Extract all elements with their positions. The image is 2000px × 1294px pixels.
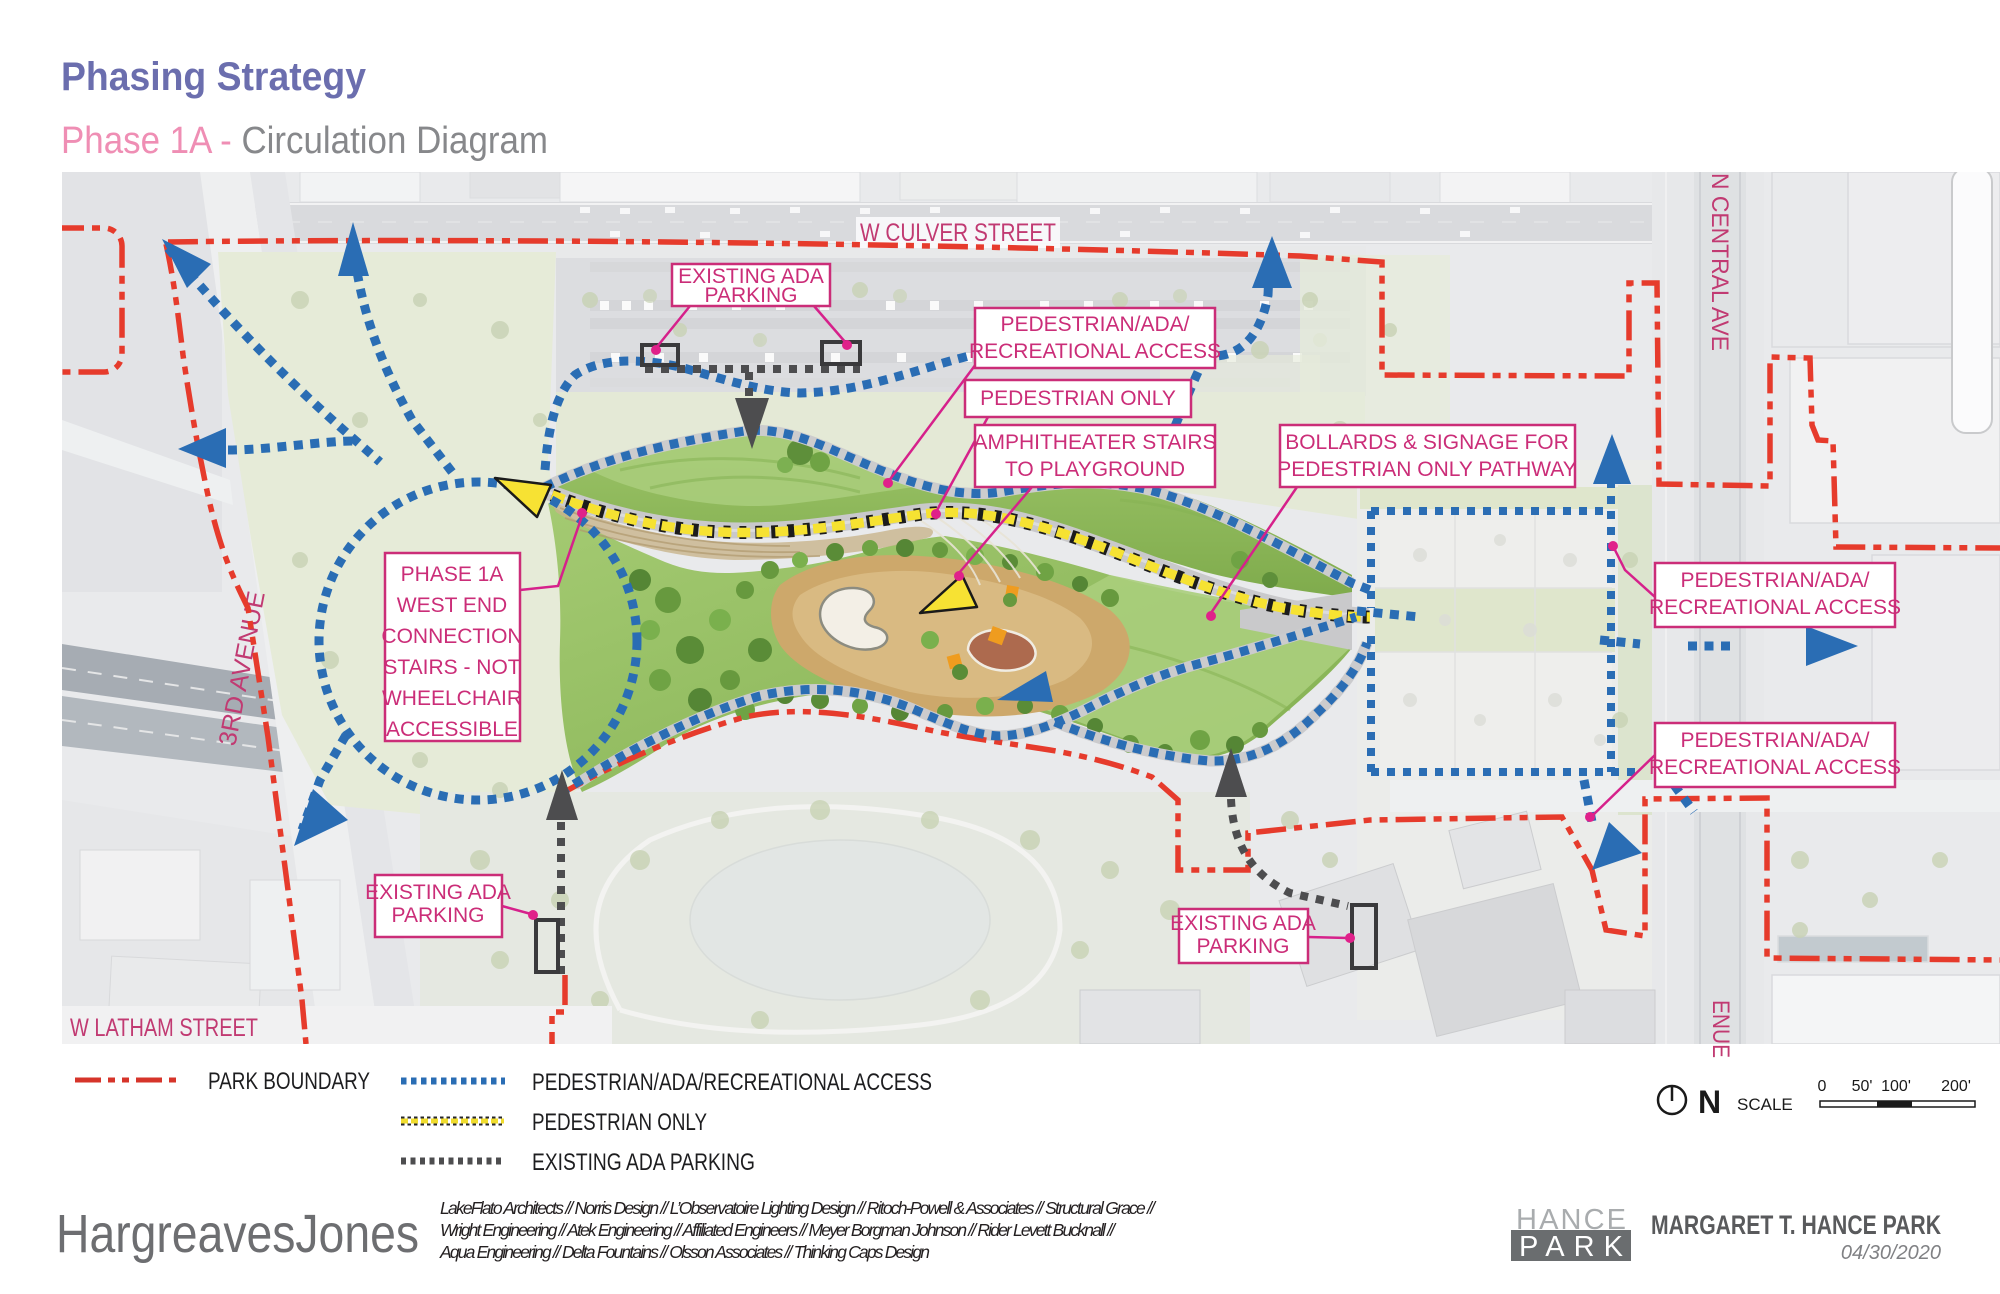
svg-text:PEDESTRIAN ONLY: PEDESTRIAN ONLY: [532, 1109, 707, 1136]
svg-text:PARKING: PARKING: [1197, 935, 1290, 958]
svg-text:EXISTING ADA: EXISTING ADA: [365, 881, 511, 904]
svg-text:0: 0: [1818, 1078, 1827, 1095]
svg-text:EXISTING ADA PARKING: EXISTING ADA PARKING: [532, 1149, 755, 1176]
svg-text:ENUE: ENUE: [1707, 1000, 1734, 1058]
svg-text:WHEELCHAIR: WHEELCHAIR: [382, 687, 522, 710]
svg-text:04/30/2020: 04/30/2020: [1841, 1242, 1941, 1264]
svg-text:PEDESTRIAN/ADA/: PEDESTRIAN/ADA/: [1680, 729, 1869, 752]
svg-text:CONNECTION: CONNECTION: [381, 625, 522, 648]
svg-text:N CENTRAL AVE: N CENTRAL AVE: [1706, 173, 1733, 351]
svg-text:RECREATIONAL ACCESS: RECREATIONAL ACCESS: [969, 340, 1221, 363]
svg-text:PHASE 1A: PHASE 1A: [401, 563, 504, 586]
svg-text:PEDESTRIAN/ADA/: PEDESTRIAN/ADA/: [1000, 313, 1189, 336]
svg-text:RECREATIONAL ACCESS: RECREATIONAL ACCESS: [1649, 756, 1901, 779]
svg-text:WEST END: WEST END: [397, 594, 507, 617]
svg-text:Phase 1A - Circulation Diagram: Phase 1A - Circulation Diagram: [61, 120, 548, 162]
svg-text:AMPHITHEATER STAIRS: AMPHITHEATER STAIRS: [973, 431, 1216, 454]
svg-text:50': 50': [1852, 1078, 1873, 1095]
svg-text:LakeFlato Architects // Norris: LakeFlato Architects // Norris Design //…: [440, 1198, 1157, 1218]
svg-text:Phasing Strategy: Phasing Strategy: [61, 55, 367, 99]
svg-text:TO PLAYGROUND: TO PLAYGROUND: [1005, 458, 1185, 481]
svg-text:Wright Engineering // Atek Eng: Wright Engineering // Atek Engineering /…: [440, 1220, 1117, 1240]
svg-text:PEDESTRIAN/ADA/: PEDESTRIAN/ADA/: [1680, 569, 1869, 592]
svg-text:200': 200': [1941, 1078, 1971, 1095]
svg-text:PEDESTRIAN ONLY PATHWAY: PEDESTRIAN ONLY PATHWAY: [1277, 458, 1577, 481]
svg-text:RECREATIONAL ACCESS: RECREATIONAL ACCESS: [1649, 596, 1901, 619]
svg-text:EXISTING ADA: EXISTING ADA: [1170, 912, 1316, 935]
svg-text:PARK BOUNDARY: PARK BOUNDARY: [208, 1068, 370, 1095]
svg-text:SCALE: SCALE: [1737, 1095, 1793, 1114]
svg-text:N: N: [1698, 1084, 1721, 1120]
svg-text:PARKING: PARKING: [392, 904, 485, 927]
svg-text:MARGARET T. HANCE PARK: MARGARET T. HANCE PARK: [1651, 1210, 1941, 1240]
svg-text:PEDESTRIAN ONLY: PEDESTRIAN ONLY: [980, 387, 1176, 410]
svg-text:STAIRS - NOT: STAIRS - NOT: [383, 656, 520, 679]
svg-text:Aqua Engineering // Delta Foun: Aqua Engineering // Delta Fountains // O…: [439, 1242, 930, 1262]
svg-text:PEDESTRIAN/ADA/RECREATIONAL AC: PEDESTRIAN/ADA/RECREATIONAL ACCESS: [532, 1069, 932, 1096]
svg-text:ACCESSIBLE: ACCESSIBLE: [386, 718, 518, 741]
svg-text:W LATHAM STREET: W LATHAM STREET: [70, 1014, 258, 1042]
svg-text:PARKING: PARKING: [705, 284, 798, 307]
svg-text:BOLLARDS & SIGNAGE FOR: BOLLARDS & SIGNAGE FOR: [1285, 431, 1569, 454]
svg-text:100': 100': [1881, 1078, 1911, 1095]
svg-text:HargreavesJones: HargreavesJones: [56, 1204, 419, 1264]
